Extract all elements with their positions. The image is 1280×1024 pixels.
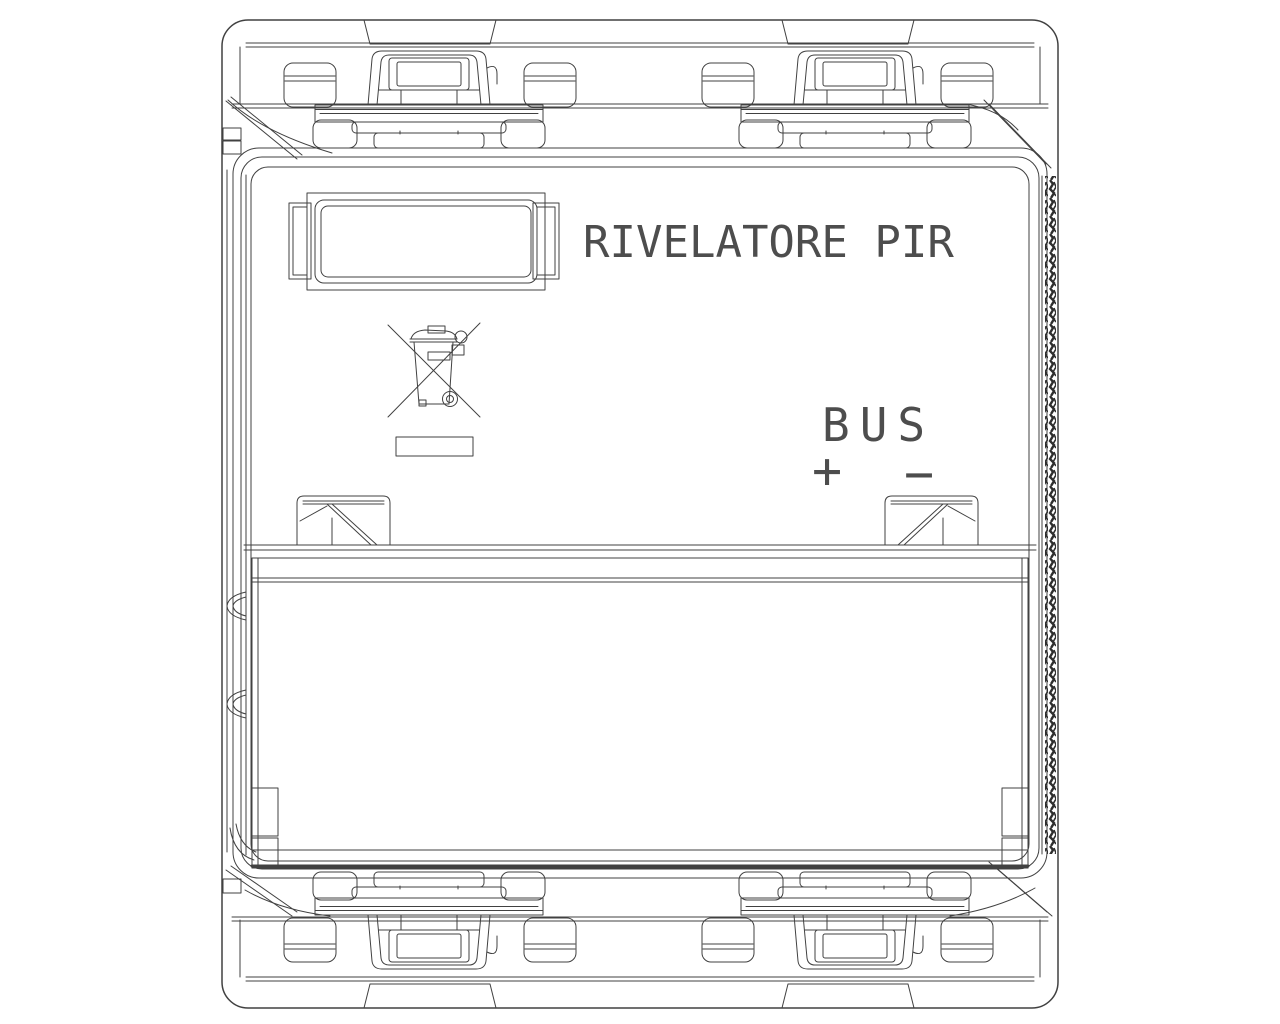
retention-post <box>524 63 576 107</box>
retention-post <box>284 63 336 107</box>
right-serrated-edge <box>1042 176 1056 854</box>
technical-drawing-canvas: RIVELATORE PIR BUS + − <box>0 0 1280 1024</box>
central-recess <box>244 545 1036 868</box>
label-window <box>289 193 559 290</box>
weee-crossed-bin-icon <box>388 323 480 456</box>
recess-notch-right <box>885 496 978 545</box>
top-edge-tabs <box>364 20 914 44</box>
retention-post <box>284 918 336 962</box>
bus-plus-terminal: + <box>812 442 842 500</box>
recess-notch-left <box>297 496 390 545</box>
mounting-clip-top-right <box>739 51 971 148</box>
bottom-edge-tabs <box>364 984 914 1008</box>
retention-post <box>702 63 754 107</box>
retention-post <box>524 918 576 962</box>
top-mounting-clips <box>284 51 993 148</box>
device-label: RIVELATORE PIR <box>583 217 954 268</box>
retention-post <box>702 918 754 962</box>
frame-lines <box>223 43 1048 981</box>
pir-detector-module-drawing: RIVELATORE PIR BUS + − <box>0 0 1280 1024</box>
mounting-clip-top-left <box>313 51 545 148</box>
retention-post <box>941 918 993 962</box>
retention-post <box>941 63 993 107</box>
bus-minus-terminal: − <box>904 445 934 503</box>
bus-terminal-markings: BUS + − <box>812 398 935 503</box>
